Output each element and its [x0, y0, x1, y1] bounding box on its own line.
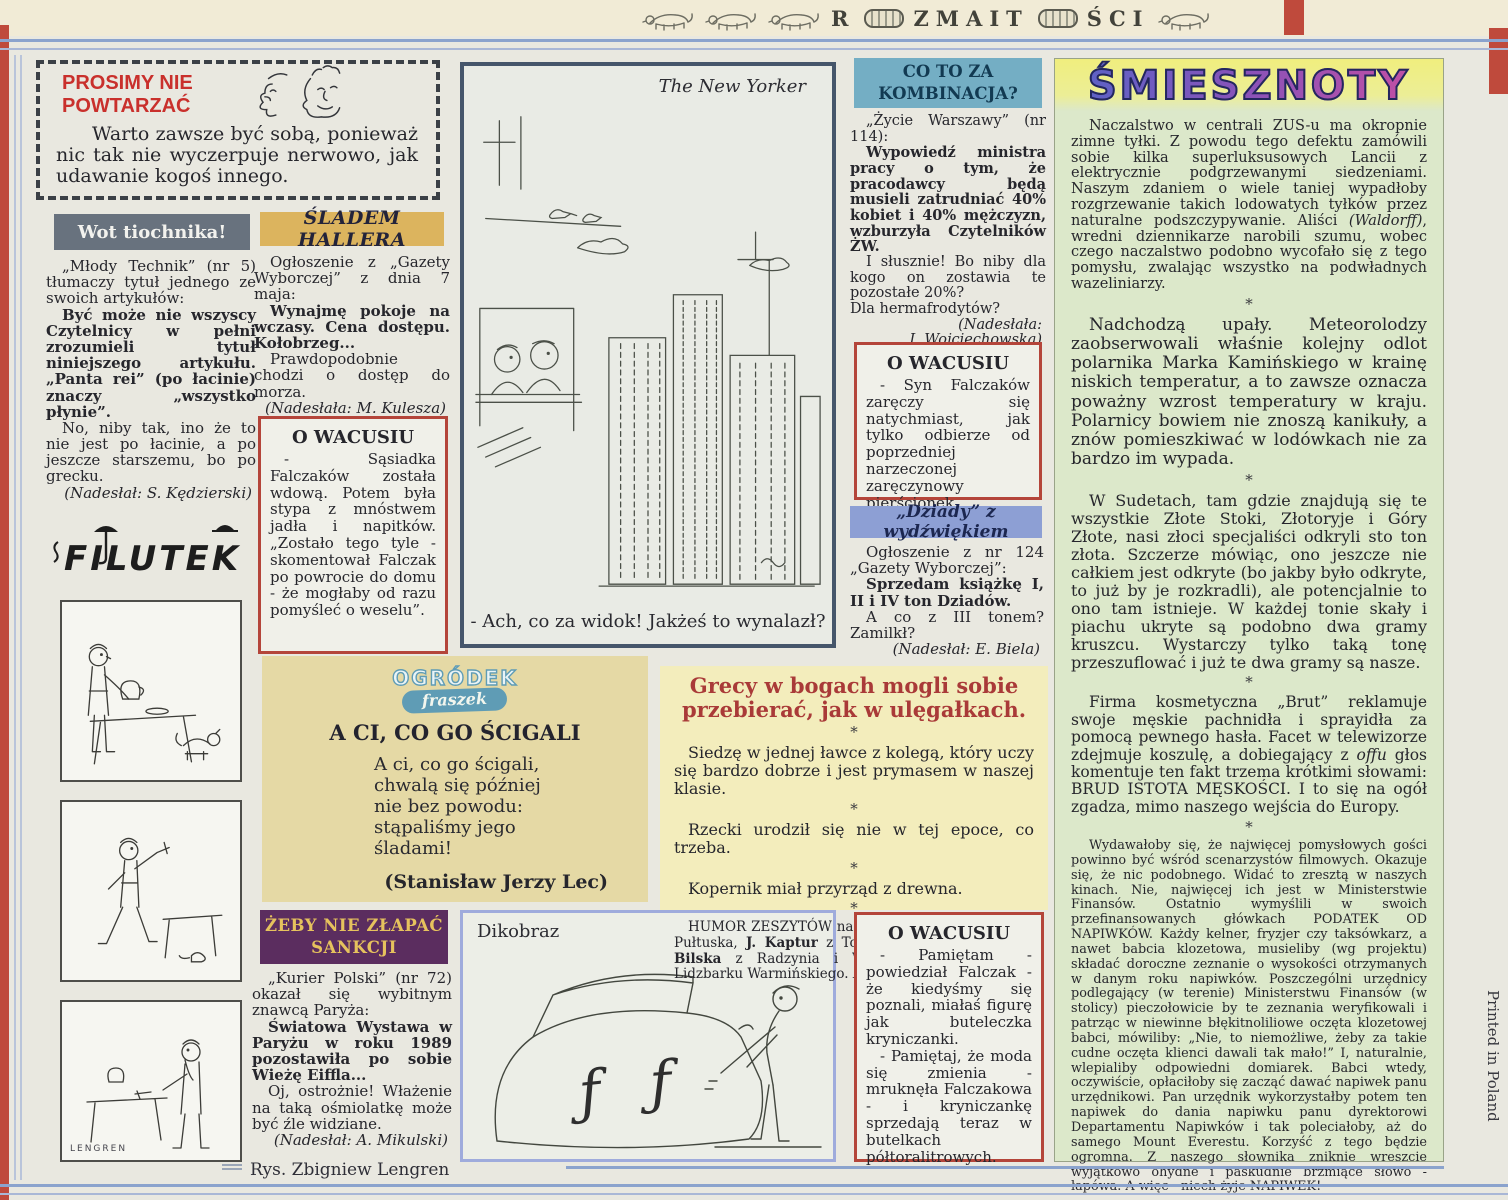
- printed-in-poland-note: Printed in Poland: [1484, 990, 1502, 1160]
- section-header-label: „Dziady” z wydźwiękiem: [850, 502, 1042, 542]
- credit-line: (Nadesłał: A. Mikulski): [252, 1132, 452, 1148]
- credit-line: (Nadesłał: E. Biela): [850, 641, 1044, 657]
- illustrator-caption: Rys. Zbigniew Lengren: [250, 1160, 449, 1180]
- asterisk-separator: *: [1071, 820, 1427, 835]
- paragraph: „Kurier Polski” (nr 72) okazał się wybit…: [252, 970, 452, 1019]
- dachshund-icon: [1158, 5, 1212, 31]
- masthead-letters: ŚCI: [1087, 6, 1150, 31]
- artist-signature: LENGREN: [70, 1144, 127, 1154]
- masthead-letters: ZMAIT: [913, 6, 1028, 31]
- paragraph: Wynajmę pokoje na wczasy. Cena dostępu. …: [254, 303, 450, 352]
- svg-text:ƒ: ƒ: [564, 1056, 613, 1128]
- asterisk-separator: *: [1071, 473, 1427, 488]
- paragraph: Być może nie wszyscy Czytelnicy w pełni …: [46, 307, 256, 420]
- sausage-icon: [1038, 9, 1078, 28]
- section-header-wot-tiochnika: Wot tiochnika!: [54, 214, 250, 250]
- box-title: O WACUSIU: [866, 353, 1030, 374]
- masthead: R ZMAIT ŚCI: [642, 2, 1282, 34]
- masthead-strip: R ZMAIT ŚCI: [0, 0, 1508, 36]
- two-faces-doodle-icon: [240, 64, 370, 126]
- dachshund-icon: [642, 5, 696, 31]
- logo-line: OGRÓDEK: [345, 666, 565, 690]
- paragraph: Firma kosmetyczna „Brut” reklamuje swoje…: [1071, 694, 1427, 816]
- logo-line: fraszek: [402, 687, 508, 714]
- svg-text:ƒ: ƒ: [636, 1047, 683, 1118]
- wot-article: „Młody Technik” (nr 5) tłumaczy tytuł je…: [46, 258, 256, 501]
- newspaper-page: R ZMAIT ŚCI PROSIMY NIE POWTARZAĆ: [0, 0, 1508, 1200]
- filutek-comic-panel-3: LENGREN: [60, 1000, 242, 1162]
- section-header-label: ŻEBY NIE ZŁAPAĆ SANKCJI: [265, 915, 443, 960]
- box-title: O WACUSIU: [866, 923, 1032, 944]
- poem-title: A CI, CO GO ŚCIGALI: [262, 720, 648, 745]
- comic-drawing: [62, 1002, 240, 1160]
- o-wacusiu-box-1: O WACUSIU - Sąsiadka Falczaków została w…: [258, 416, 448, 654]
- asterisk-separator: *: [1071, 297, 1427, 312]
- credit-line: (Nadesłała: M. Kulesza): [254, 400, 450, 416]
- bottom-rule: [0, 1184, 1508, 1195]
- red-block: [1284, 0, 1304, 35]
- smiesznoty-body: Naczalstwo w centrali ZUS-u ma okropnie …: [1055, 111, 1443, 1200]
- humor-item: Rzecki urodził się nie w tej epoce, co t…: [674, 821, 1034, 857]
- paragraph: Światowa Wystawa w Paryżu w roku 1989 po…: [252, 1019, 452, 1084]
- paragraph: I słusznie! Bo niby dla kogo on zostawia…: [850, 255, 1046, 302]
- sladem-article: Ogłoszenie z „Gazety Wyborczej” z dnia 7…: [254, 254, 450, 416]
- paragraph: Dla hermafrodytów?: [850, 302, 1046, 318]
- paragraph: W Sudetach, tam gdzie znajdują się te ws…: [1071, 492, 1427, 671]
- section-header-sladem-hallera: ŚLADEM HALLERA: [260, 212, 444, 246]
- cartoon-source-label: Dikobraz: [477, 921, 559, 942]
- margin-line: [20, 55, 22, 1180]
- svg-text:FILUTEK: FILUTEK: [64, 539, 241, 579]
- prosimy-title: PROSIMY NIE POWTARZAĆ: [62, 72, 232, 118]
- masthead-letters: R: [831, 6, 855, 31]
- margin-line: [14, 55, 16, 1180]
- paragraph: Wypowiedź ministra pracy o tym, że praco…: [850, 145, 1046, 255]
- sausage-icon: [864, 9, 904, 28]
- paragraph: „Życie Warszawy” (nr 114):: [850, 114, 1046, 145]
- paragraph: Wydawałoby się, że najwięcej pomysłowych…: [1071, 839, 1427, 1195]
- paragraph: Oj, ostrożnie! Włażenie na taką ośmiolat…: [252, 1083, 452, 1132]
- paragraph: Nadchodzą upały. Meteorolodzy zaobserwow…: [1071, 316, 1427, 470]
- paragraph: Ogłoszenie z „Gazety Wyborczej” z dnia 7…: [254, 254, 450, 303]
- filutek-logo: FILUTEK: [48, 518, 252, 584]
- asterisk-separator: *: [674, 725, 1034, 740]
- humor-title: Grecy w bogach mogli sobie przebierać, j…: [674, 674, 1034, 721]
- section-header-label: CO TO ZA KOMBINACJA?: [878, 61, 1018, 106]
- prosimy-box: PROSIMY NIE POWTARZAĆ Warto zawsze być s…: [36, 60, 440, 200]
- new-yorker-cartoon-box: The New Yorker - Ach, co za widok! Jakż: [460, 62, 836, 648]
- cartoon-source-label: The New Yorker: [659, 76, 806, 97]
- asterisk-separator: *: [674, 802, 1034, 817]
- asterisk-separator: *: [674, 861, 1034, 876]
- paragraph: - Sąsiadka Falczaków została wdową. Pote…: [270, 451, 436, 619]
- smiesznoty-title: ŚMIESZNOTY: [1055, 63, 1443, 109]
- prosimy-body: Warto zawsze być sobą, ponieważ nic tak …: [56, 124, 418, 187]
- paragraph: A co z III tonem? Zamilkł?: [850, 609, 1044, 641]
- coto-article: „Życie Warszawy” (nr 114): Wypowiedź min…: [850, 114, 1046, 349]
- caption-dash: [222, 1164, 242, 1170]
- red-block: [1489, 28, 1508, 94]
- poem-text: A ci, co go ścigali, chwalą się później …: [262, 755, 648, 859]
- section-header-zeby-nie-zlapac: ŻEBY NIE ZŁAPAĆ SANKCJI: [260, 910, 448, 964]
- paragraph: Prawdopodobnie chodzi o dostęp do morza.: [254, 351, 450, 400]
- ogrodek-fraszek-box: OGRÓDEK fraszek A CI, CO GO ŚCIGALI A ci…: [262, 656, 648, 902]
- filutek-comic-panel-1: [60, 600, 242, 782]
- section-header-label: ŚLADEM HALLERA: [260, 207, 444, 251]
- asterisk-separator: *: [1071, 675, 1427, 690]
- comic-drawing: [62, 602, 240, 780]
- section-header-co-to-za-kombinacja: CO TO ZA KOMBINACJA?: [854, 58, 1042, 108]
- o-wacusiu-box-3: O WACUSIU - Pamiętam - powiedział Falcza…: [854, 912, 1044, 1162]
- dziady-article: Ogłoszenie z nr 124 „Gazety Wyborczej”: …: [850, 544, 1044, 657]
- paragraph: - Syn Falczaków zaręczy się natychmiast,…: [866, 377, 1030, 511]
- humor-zeszytow-box: Grecy w bogach mogli sobie przebierać, j…: [660, 666, 1048, 910]
- ogrodek-fraszek-logo: OGRÓDEK fraszek: [345, 666, 565, 712]
- poem-author: (Stanisław Jerzy Lec): [262, 871, 648, 893]
- box-title: O WACUSIU: [270, 427, 436, 448]
- dachshund-icon: [705, 5, 759, 31]
- paragraph: Sprzedam książkę I, II i IV ton Dziadów.: [850, 576, 1044, 608]
- paragraph: „Młody Technik” (nr 5) tłumaczy tytuł je…: [46, 258, 256, 307]
- city-view-cartoon-drawing: [472, 100, 824, 600]
- o-wacusiu-box-2: O WACUSIU - Syn Falczaków zaręczy się na…: [854, 342, 1042, 500]
- paragraph: Naczalstwo w centrali ZUS-u ma okropnie …: [1071, 119, 1427, 293]
- paragraph: Ogłoszenie z nr 124 „Gazety Wyborczej”:: [850, 544, 1044, 576]
- paragraph: - Pamiętam - powiedział Falczak - że kie…: [866, 947, 1032, 1048]
- humor-item: Siedzę w jednej ławce z kolegą, który uc…: [674, 744, 1034, 798]
- comic-drawing: [62, 802, 240, 980]
- paragraph: No, niby tak, ino że to nie jest po łaci…: [46, 420, 256, 485]
- zeby-article: „Kurier Polski” (nr 72) okazał się wybit…: [252, 970, 452, 1148]
- cartoon-caption: - Ach, co za widok! Jakżeś to wynalazł?: [464, 611, 832, 632]
- filutek-comic-panel-2: [60, 800, 242, 982]
- filutek-logo-art: FILUTEK: [48, 518, 252, 584]
- caption-rule: [566, 1166, 1444, 1169]
- section-header-label: Wot tiochnika!: [78, 222, 227, 243]
- section-header-dziady: „Dziady” z wydźwiękiem: [850, 506, 1042, 538]
- top-rule: [0, 39, 1508, 50]
- humor-item: Kopernik miał przyrząd z drewna.: [674, 880, 1034, 898]
- credit-line: (Nadesłał: S. Kędzierski): [46, 485, 256, 501]
- paragraph: - Pamiętaj, że moda się zmienia - mruknę…: [866, 1048, 1032, 1166]
- dachshund-icon: [768, 5, 822, 31]
- smiesznoty-panel: ŚMIESZNOTY Naczalstwo w centrali ZUS-u m…: [1054, 58, 1444, 1162]
- red-edge-strip: [0, 25, 9, 1200]
